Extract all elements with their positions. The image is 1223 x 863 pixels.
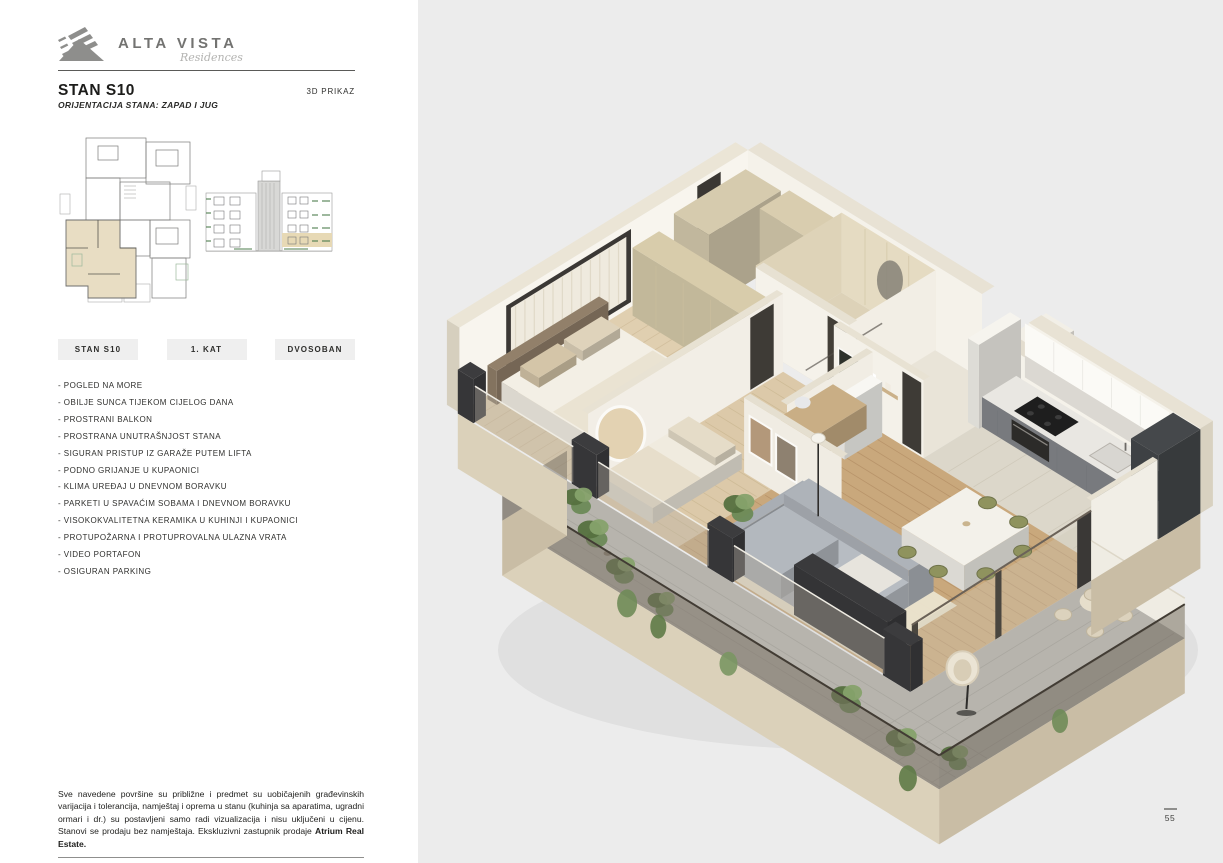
feature-item: VISOKOKVALITETNA KERAMIKA U KUHINJI I KU… (58, 513, 298, 530)
badge-unit: STAN S10 (58, 339, 138, 360)
page-number-rule (1164, 808, 1177, 810)
badge-row: STAN S10 1. KAT DVOSOBAN (58, 339, 355, 360)
highlighted-floor (282, 233, 332, 247)
page-subtitle: ORIJENTACIJA STANA: ZAPAD I JUG (58, 100, 218, 110)
feature-item: SIGURAN PRISTUP IZ GARAŽE PUTEM LIFTA (58, 446, 298, 463)
highlighted-unit (66, 220, 136, 298)
brochure-page: ALTA VISTA Residences STAN S10 3D PRIKAZ… (0, 0, 1223, 863)
floorplan-thumbnail (58, 136, 198, 308)
feature-item: PODNO GRIJANJE U KUPAONICI (58, 463, 298, 480)
page-number: 55 (1150, 813, 1190, 823)
header-rule (58, 70, 355, 71)
badge-floor: 1. KAT (167, 339, 247, 360)
page-title: STAN S10 (58, 82, 135, 100)
feature-item: PROTUPOŽARNA I PROTUPROVALNA ULAZNA VRAT… (58, 530, 298, 547)
brand-logo: ALTA VISTA Residences (58, 22, 358, 68)
feature-item: OBILJE SUNCA TIJEKOM CIJELOG DANA (58, 395, 298, 412)
feature-item: OSIGURAN PARKING (58, 564, 298, 581)
feature-item: KLIMA UREĐAJ U DNEVNOM BORAVKU (58, 479, 298, 496)
elevation-thumbnail (204, 166, 334, 264)
brand-name: ALTA VISTA (118, 35, 237, 52)
info-panel: ALTA VISTA Residences STAN S10 3D PRIKAZ… (0, 0, 418, 863)
brand-tagline: Residences (180, 51, 243, 64)
feature-item: VIDEO PORTAFON (58, 547, 298, 564)
badge-type: DVOSOBAN (275, 339, 355, 360)
feature-item: PARKETI U SPAVAĆIM SOBAMA I DNEVNOM BORA… (58, 496, 298, 513)
alta-vista-logo-icon (58, 24, 106, 64)
feature-item: POGLED NA MORE (58, 378, 298, 395)
feature-item: PROSTRANA UNUTRAŠNJOST STANA (58, 429, 298, 446)
page-number-block: 55 (1150, 808, 1190, 823)
feature-item: PROSTRANI BALKON (58, 412, 298, 429)
view-label: 3D PRIKAZ (255, 87, 355, 96)
render-panel: 55 (418, 0, 1223, 863)
disclaimer: Sve navedene površine su približne i pre… (58, 788, 364, 858)
apartment-3d-render (418, 0, 1223, 863)
features-list: POGLED NA MORE OBILJE SUNCA TIJEKOM CIJE… (58, 378, 298, 581)
